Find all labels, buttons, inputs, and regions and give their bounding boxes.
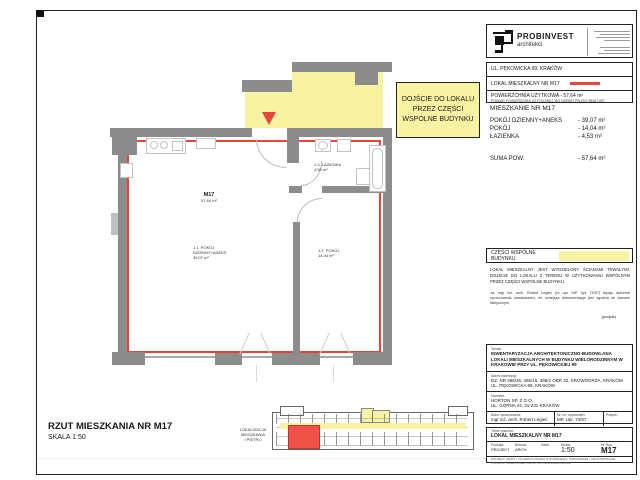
site-unit-row: LOKAL MIESZKALNY NR M17 (487, 76, 632, 90)
kitchen-counter-2 (196, 138, 216, 149)
summary-total-row: SUMA POW: - 57,64 m² (490, 155, 630, 163)
funkcja-value: PROJEKT. (491, 447, 515, 452)
site-address: UL. PĘKOWICKA 99, KRAKÓW (487, 63, 632, 76)
wall-bathroom-bottom-a (289, 186, 302, 193)
wall-top-right (287, 128, 392, 137)
wall-corridor-top (292, 62, 392, 72)
drawing-scale: SKALA 1:50 (48, 434, 86, 441)
window-left (111, 213, 118, 235)
access-note-line1: DOJŚCIE DO LOKALU (402, 95, 474, 105)
boundary-legend-redline (570, 82, 600, 85)
summary-title: MIESZKANIE NR M17 (490, 105, 630, 112)
titleblock-project: Temat: INWENTARYZACJA ARCHITEKTONICZNO-B… (486, 344, 633, 424)
total-label: SUMA POW: (490, 155, 578, 163)
autor-value: mgr inż. arch. Robert Legieć (491, 417, 552, 423)
bathtub-inner (372, 148, 383, 189)
window-bottom-1 (145, 356, 215, 358)
balcony-door-2 (320, 356, 353, 358)
minimap-caption: LOKALIZACJA MIESZKANIA I PIĘTRO (236, 428, 270, 442)
data-label: Data: (541, 443, 561, 447)
room-area: 39,07 m² (193, 255, 209, 260)
minimap (272, 404, 474, 450)
access-note-line3: WSPÓLNE BUDYNKU (402, 115, 473, 125)
unit-label: M17 57,64 m² (186, 192, 232, 203)
total-value: - 57,64 m² (578, 155, 605, 163)
inwestor-line2: UL. GÓRNA 44, 31-231 KRAKÓW (491, 403, 628, 409)
room-name: POKÓJ DZIENNY+ANEKS (193, 245, 226, 255)
logo-subtitle: architekci (517, 42, 542, 48)
common-parts-legend: CZĘŚCI WSPÓLNE BUDYNKU (486, 248, 633, 263)
pier-bottom-left (112, 352, 145, 365)
logo-name: PROBINVEST (517, 32, 574, 41)
room-label-bedroom: 1.2 POKÓJ 14,04 m² (318, 248, 358, 258)
logo-box: PROBINVEST architekci (486, 24, 633, 58)
row-value: - 14,04 m² (578, 125, 605, 133)
wall-corridor-notch (355, 72, 378, 85)
legal-paragraph-2: Ja, mgr inż. arch. Robert Legieć (nr upr… (490, 291, 630, 306)
row-value: - 4,53 m² (578, 133, 602, 141)
signature-hint: (podpis) (490, 306, 630, 319)
apartment-summary: MIESZKANIE NR M17 POKÓJ DZIENNY+ANEKS - … (490, 105, 630, 163)
wall-corridor-left (242, 80, 292, 92)
titleblock-drawing: Treść rysunku: LOKAL MIESZKALNY NR M17 F… (486, 427, 633, 463)
wall-bathroom-left (287, 137, 299, 163)
site-info-box: UL. PĘKOWICKA 99, KRAKÓW LOKAL MIESZKALN… (486, 62, 633, 103)
summary-row: POKÓJ - 14,04 m² (490, 125, 630, 133)
axis-guide-2 (333, 365, 334, 382)
branza-value: ARCH. (515, 447, 541, 452)
kitchen-sink-bowl-2 (160, 141, 168, 149)
room-label-living: 1.1 POKÓJ DZIENNY+ANEKS 39,07 m² (193, 245, 237, 260)
minimap-caption-line3: I PIĘTRO (236, 438, 270, 443)
row-label: ŁAZIENKA (490, 133, 578, 141)
access-note: DOJŚCIE DO LOKALU PRZEZ CZĘŚCI WSPÓLNE B… (396, 82, 480, 138)
site-unit-label: LOKAL MIESZKALNY NR M17 (491, 81, 560, 87)
site-area-note: POMIAR POWIERZCHNI UŻYTKOWEJ WG NORMY PN… (491, 99, 632, 103)
adres-line2: UL. PĘKOWICKA 99, KRAKÓW (491, 383, 628, 389)
bathroom-sink-bowl (318, 141, 328, 150)
common-label: CZĘŚCI WSPÓLNE BUDYNKU (487, 250, 559, 262)
copyright-line: PROJEKT OBJĘTY OCHRONĄ PRAWA AUTORSKIEGO… (487, 456, 632, 465)
pier-bottom-2 (215, 353, 242, 365)
pillar-top-left (112, 130, 137, 155)
wall-interior-room (293, 222, 300, 353)
tresc-value: LOKAL MIESZKALNY NR M17 (491, 433, 628, 439)
pier-bottom-3 (272, 353, 320, 365)
toilet (337, 139, 351, 152)
summary-row: POKÓJ DZIENNY+ANEKS - 39,07 m² (490, 117, 630, 125)
logo-divider (587, 28, 588, 56)
drawing-title: RZUT MIESZKANIA NR M17 (48, 421, 172, 432)
upr-value: MP. Upr. 73/97 (557, 417, 601, 423)
site-area-row: POWIERZCHNIA UŻYTKOWA - 57,64 m² POMIAR … (487, 90, 632, 103)
row-label: POKÓJ DZIENNY+ANEKS (490, 117, 578, 125)
probinvest-logo-icon (493, 30, 513, 53)
temat-value: INWENTARYZACJA ARCHITEKTONICZNO-BUDOWLAN… (491, 351, 628, 368)
room-area: 4,53 m² (314, 167, 328, 172)
frame-corner-mark (36, 10, 44, 17)
kitchen-sink-bowl-1 (150, 141, 158, 149)
wall-left (118, 155, 127, 355)
nr-value: M17 (601, 447, 628, 455)
summary-row: ŁAZIENKA - 4,53 m² (490, 133, 630, 141)
row-label: POKÓJ (490, 125, 578, 133)
room-area: 14,04 m² (318, 253, 334, 258)
room-label-bathroom: 1.3 ŁAZIENKA 4,53 m² (314, 162, 356, 172)
unit-area: 57,64 m² (186, 198, 232, 203)
podpis-label: Podpis: (606, 413, 632, 417)
axis-guide-1 (256, 365, 257, 382)
logo-contact-block (591, 29, 630, 54)
skala-value: 1:50 (561, 447, 601, 454)
legal-paragraph-1: LOKAL MIESZKALNY JEST WYDZIELONY ŚCIANAM… (490, 267, 630, 284)
row-value: - 39,07 m² (578, 117, 605, 125)
legal-block: LOKAL MIESZKALNY JEST WYDZIELONY ŚCIANAM… (490, 267, 630, 319)
kitchen-stove (172, 141, 183, 151)
access-note-line2: PRZEZ CZĘŚCI (413, 105, 464, 115)
fridge (120, 163, 133, 178)
common-yellow-swatch (559, 251, 629, 261)
minimap-highlighted-unit (288, 425, 320, 449)
entrance-arrow-icon (262, 112, 276, 125)
balcony-door-1 (242, 356, 272, 358)
